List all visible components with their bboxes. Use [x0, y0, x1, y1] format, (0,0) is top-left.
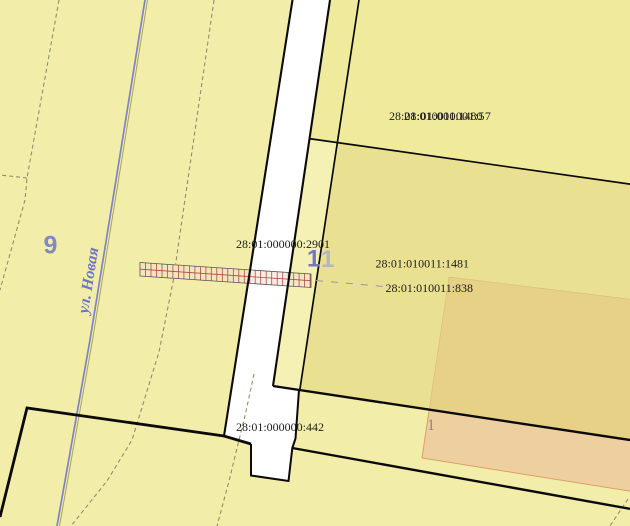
- svg-text:28:01:010011:1481: 28:01:010011:1481: [376, 257, 470, 271]
- svg-text:28:01:000001:57: 28:01:000001:57: [404, 109, 491, 123]
- svg-text:1: 1: [307, 246, 320, 273]
- svg-text:1: 1: [427, 417, 435, 434]
- svg-text:9: 9: [44, 232, 58, 260]
- svg-text:28:01:010011:838: 28:01:010011:838: [386, 281, 474, 295]
- svg-text:28:01:000000:442: 28:01:000000:442: [236, 420, 324, 434]
- svg-text:1: 1: [321, 246, 334, 273]
